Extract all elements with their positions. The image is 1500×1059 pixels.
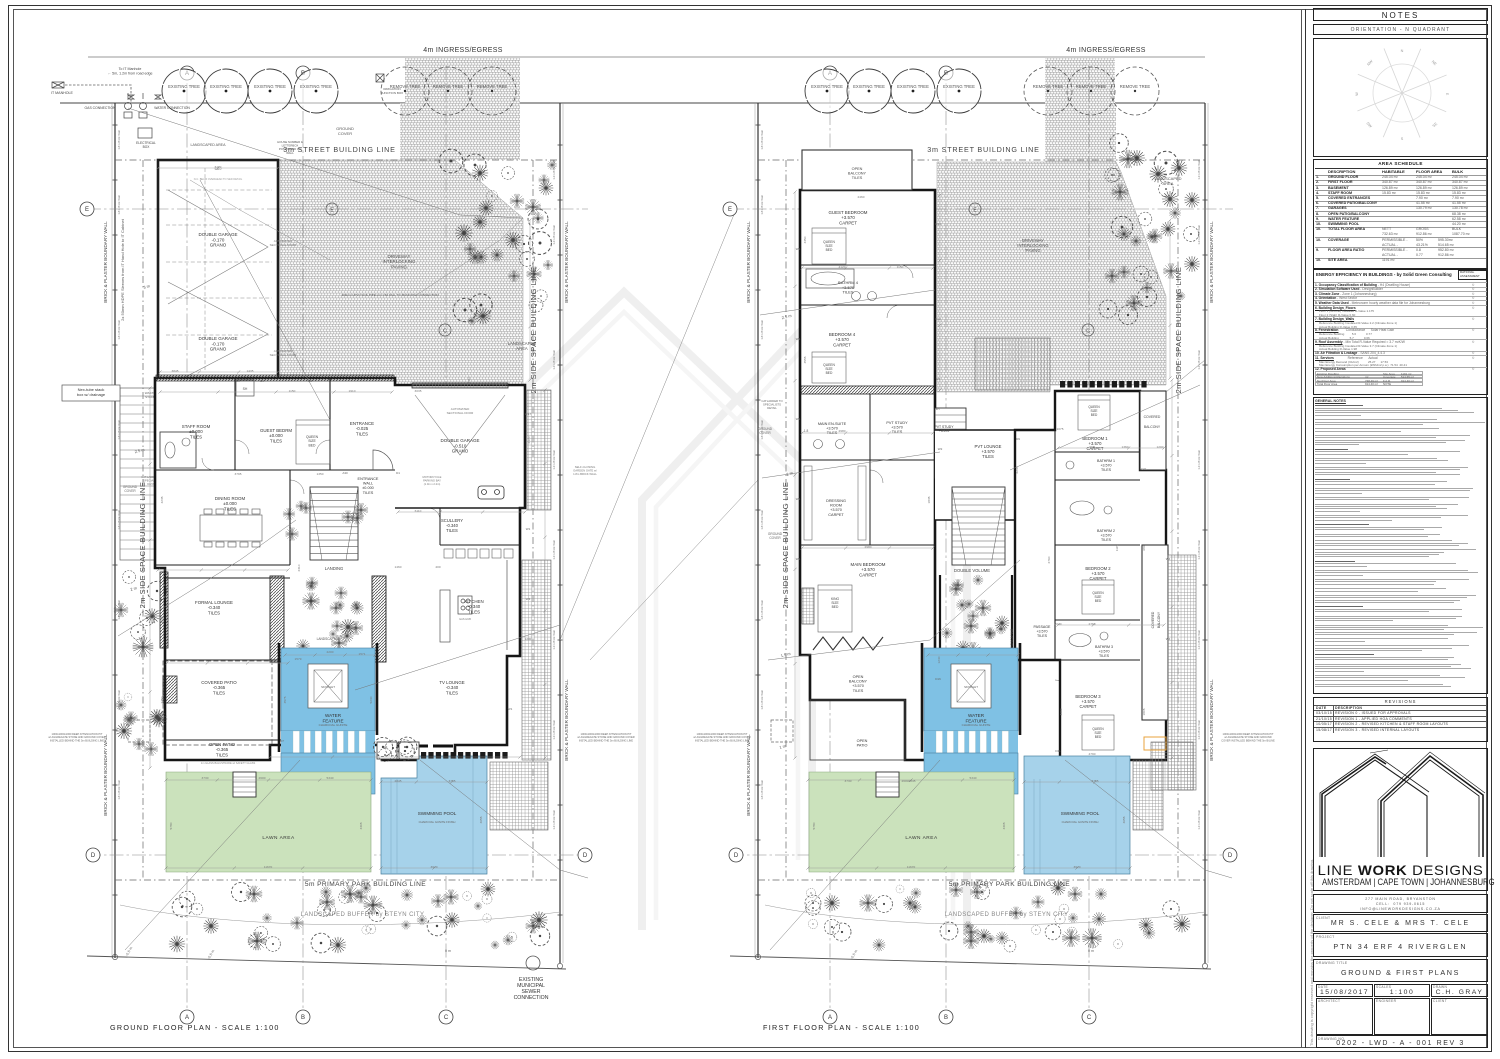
svg-text:D3: D3 xyxy=(308,379,312,383)
svg-text:DOUBLE GARAGE-0.170GRANO: DOUBLE GARAGE-0.170GRANO xyxy=(198,232,237,248)
svg-text:COVERED: COVERED xyxy=(1144,415,1161,419)
svg-text:IRRIGATIONJUNCTION BOX: IRRIGATIONJUNCTION BOX xyxy=(381,87,403,95)
svg-text:CHARCOAL GUNITE FINISH: CHARCOAL GUNITE FINISH xyxy=(419,820,456,824)
svg-text:C: C xyxy=(444,1015,449,1021)
svg-text:5780: 5780 xyxy=(169,822,173,829)
svg-text:-0.5 m: -0.5 m xyxy=(207,949,216,960)
svg-text:SKYLIGHT: SKYLIGHT xyxy=(964,685,978,689)
svg-text:3845: 3845 xyxy=(172,369,179,373)
svg-text:2600: 2600 xyxy=(259,776,266,780)
svg-text:LANDSCAPED AREA: LANDSCAPED AREA xyxy=(191,143,227,147)
svg-text:4350: 4350 xyxy=(803,236,807,243)
svg-text:4m INGRESS/EGRESS: 4m INGRESS/EGRESS xyxy=(1066,47,1145,54)
svg-text:A30: A30 xyxy=(342,471,348,475)
svg-text:To IT Manhole← 5m, 1.2m from: To IT Manhole← 5m, 1.2m from road edge xyxy=(108,67,153,75)
svg-text:4308: 4308 xyxy=(1002,822,1006,829)
svg-text:W1: W1 xyxy=(796,247,801,251)
svg-text:GROUNDCOVER: GROUNDCOVER xyxy=(336,126,354,136)
svg-text:1.8m Brick Wall: 1.8m Brick Wall xyxy=(117,130,121,150)
svg-text:1000x1000x1000 DEEP ATTENUATIO: 1000x1000x1000 DEEP ATTENUATION PITw/ AG… xyxy=(693,732,750,742)
svg-text:2 m: 2 m xyxy=(130,585,138,592)
svg-text:D16: D16 xyxy=(935,677,941,681)
svg-text:1240: 1240 xyxy=(937,656,941,663)
svg-text:2760: 2760 xyxy=(1047,556,1051,563)
svg-text:OPENPATIO: OPENPATIO xyxy=(857,739,868,748)
svg-text:400: 400 xyxy=(435,565,440,569)
svg-text:W4: W4 xyxy=(1166,637,1171,641)
svg-text:4235: 4235 xyxy=(160,496,164,503)
svg-text:1.2m Brick Wall: 1.2m Brick Wall xyxy=(552,720,556,740)
svg-text:2x 50mm HDPE Sleeves from IT H: 2x 50mm HDPE Sleeves from IT Hand Hole t… xyxy=(120,218,125,321)
svg-text:WATER CONNECTION: WATER CONNECTION xyxy=(154,106,190,110)
svg-text:SH: SH xyxy=(236,379,240,383)
svg-text:11670: 11670 xyxy=(264,865,273,869)
svg-text:2200: 2200 xyxy=(327,650,334,654)
svg-text:4555: 4555 xyxy=(803,356,807,363)
svg-text:W17: W17 xyxy=(525,412,532,416)
svg-text:B: B xyxy=(301,1015,305,1021)
svg-text:4575: 4575 xyxy=(283,696,287,703)
svg-text:-0.5 m: -0.5 m xyxy=(850,949,859,960)
svg-text:GROUNDCOVER: GROUNDCOVER xyxy=(123,485,138,493)
svg-text:BRICK & PLASTER BOUNDARY WALL: BRICK & PLASTER BOUNDARY WALL xyxy=(103,734,108,816)
svg-text:D11: D11 xyxy=(1055,749,1061,753)
svg-text:ELECTRICALBOX: ELECTRICALBOX xyxy=(136,141,156,149)
svg-text:1.8m Brick Wall: 1.8m Brick Wall xyxy=(760,320,764,340)
svg-text:1.2m Brick Wall: 1.2m Brick Wall xyxy=(1197,630,1201,650)
svg-text:1000x1000x1000 DEEP ATTENUATIO: 1000x1000x1000 DEEP ATTENUATION PITw/ AG… xyxy=(1221,732,1275,742)
svg-text:IT MANHOLE: IT MANHOLE xyxy=(51,91,74,95)
svg-text:3920: 3920 xyxy=(1074,865,1081,869)
svg-text:1435: 1435 xyxy=(247,369,254,373)
svg-text:REMOVE TREE: REMOVE TREE xyxy=(433,84,464,89)
svg-text:5340: 5340 xyxy=(970,776,977,780)
svg-text:1.8m Brick Wall: 1.8m Brick Wall xyxy=(117,195,121,215)
svg-text:EXISTING TREE: EXISTING TREE xyxy=(300,84,332,89)
svg-text:EXISTINGMUNICIPALSEWERCONNECTI: EXISTINGMUNICIPALSEWERCONNECTION xyxy=(514,977,549,1001)
svg-text:REMOVE TREE: REMOVE TREE xyxy=(1033,84,1064,89)
svg-text:FIRST FLOOR PLAN - SCALE 1:100: FIRST FLOOR PLAN - SCALE 1:100 xyxy=(763,1023,920,1032)
svg-text:1.2m Brick Wall: 1.2m Brick Wall xyxy=(1197,810,1201,830)
svg-text:2760: 2760 xyxy=(1089,622,1096,626)
svg-text:D: D xyxy=(1228,853,1233,859)
svg-text:KINGSIZEBED: KINGSIZEBED xyxy=(831,597,839,609)
svg-text:1.2m Brick Wall: 1.2m Brick Wall xyxy=(1197,540,1201,560)
svg-text:GROUNDCOVER: GROUNDCOVER xyxy=(768,532,783,540)
svg-text:3920: 3920 xyxy=(431,865,438,869)
svg-text:EXISTING TREE: EXISTING TREE xyxy=(811,84,843,89)
svg-text:D11: D11 xyxy=(1141,467,1147,471)
svg-text:C: C xyxy=(1086,329,1090,335)
svg-text:REMOVE TREE: REMOVE TREE xyxy=(1120,84,1151,89)
svg-text:4655: 4655 xyxy=(1122,816,1126,823)
svg-text:BRICK & PLASTER BOUNDARY WALL: BRICK & PLASTER BOUNDARY WALL xyxy=(1209,679,1214,761)
svg-text:1360: 1360 xyxy=(1122,445,1129,449)
svg-text:1.8m Brick Wall: 1.8m Brick Wall xyxy=(117,780,121,800)
svg-text:6110: 6110 xyxy=(215,165,222,169)
svg-text:2980: 2980 xyxy=(839,429,846,433)
svg-text:1.2m Brick Wall: 1.2m Brick Wall xyxy=(1197,160,1201,180)
svg-text:1075: 1075 xyxy=(1057,427,1064,431)
svg-text:EXISTING TREE: EXISTING TREE xyxy=(943,84,975,89)
svg-text:C: C xyxy=(443,329,447,335)
svg-text:N.C. BEAM OVERHEAD TO SED DETA: N.C. BEAM OVERHEAD TO SED DETAIL xyxy=(194,177,243,181)
svg-text:A: A xyxy=(185,1015,189,1021)
svg-text:GAS HUB: GAS HUB xyxy=(459,617,471,621)
svg-text:SELF-CLOSINGGARDEN GATE w/1.8m: SELF-CLOSINGGARDEN GATE w/1.8m BRICK WAL… xyxy=(573,465,597,476)
svg-text:D9: D9 xyxy=(1016,437,1020,441)
svg-text:1.2m Brick Wall: 1.2m Brick Wall xyxy=(552,450,556,470)
svg-text:BALCONY: BALCONY xyxy=(1157,611,1161,628)
svg-text:LAWN AREA: LAWN AREA xyxy=(905,835,938,841)
svg-text:D1: D1 xyxy=(396,471,400,475)
svg-text:4655: 4655 xyxy=(479,816,483,823)
svg-text:3755: 3755 xyxy=(1092,779,1099,783)
svg-text:GAS CONNECTION: GAS CONNECTION xyxy=(85,106,116,110)
svg-text:965: 965 xyxy=(1089,445,1094,449)
svg-text:1.2m Brick Wall: 1.2m Brick Wall xyxy=(552,225,556,245)
svg-text:5m PRIMARY PARK BUILDING LINE: 5m PRIMARY PARK BUILDING LINE xyxy=(949,881,1070,888)
svg-text:5230: 5230 xyxy=(369,696,373,703)
svg-text:W7: W7 xyxy=(936,377,941,381)
svg-text:E: E xyxy=(85,207,89,213)
svg-text:D14: D14 xyxy=(935,222,941,226)
svg-text:-0.5 m: -0.5 m xyxy=(125,946,134,957)
svg-text:1.2m Brick Wall: 1.2m Brick Wall xyxy=(1197,350,1201,370)
svg-text:2845: 2845 xyxy=(909,779,916,783)
svg-text:EXISTING TREE: EXISTING TREE xyxy=(210,84,242,89)
svg-text:REMOVE TREE: REMOVE TREE xyxy=(477,84,508,89)
svg-text:DOUBLE GARAGE-0.170GRANO: DOUBLE GARAGE-0.170GRANO xyxy=(198,336,237,352)
svg-text:SWIMMING POOL: SWIMMING POOL xyxy=(1061,811,1100,816)
svg-text:D12: D12 xyxy=(935,317,941,321)
svg-text:2170: 2170 xyxy=(527,436,531,443)
svg-text:D: D xyxy=(91,853,96,859)
svg-text:GROUND FLOOR PLAN - SCALE 1:10: GROUND FLOOR PLAN - SCALE 1:100 xyxy=(110,1023,280,1032)
svg-text:1.2m Brick Wall: 1.2m Brick Wall xyxy=(552,630,556,650)
svg-text:D6: D6 xyxy=(260,379,264,383)
svg-text:E: E xyxy=(728,207,732,213)
svg-text:1350: 1350 xyxy=(317,472,324,476)
svg-text:1000x1000x1000 DEEP ATTENUATIO: 1000x1000x1000 DEEP ATTENUATION PITw/ AG… xyxy=(48,732,105,742)
svg-text:3755: 3755 xyxy=(449,779,456,783)
svg-text:2m SIDE SPACE BUILDING LINE: 2m SIDE SPACE BUILDING LINE xyxy=(138,482,147,609)
svg-text:2.5 m: 2.5 m xyxy=(134,447,146,455)
svg-text:1200: 1200 xyxy=(525,637,532,641)
svg-text:LANDSCAPED BUFFER by STEYN CIT: LANDSCAPED BUFFER by STEYN CITY xyxy=(945,912,1069,918)
svg-text:CHARCOAL GUNITE FINISH: CHARCOAL GUNITE FINISH xyxy=(1062,820,1099,824)
svg-text:1.8m Brick Wall: 1.8m Brick Wall xyxy=(760,195,764,215)
svg-text:REMOVE TREE: REMOVE TREE xyxy=(1076,84,1107,89)
svg-text:2310: 2310 xyxy=(297,564,301,571)
svg-text:W3: W3 xyxy=(383,745,388,749)
svg-text:BRICK & PLASTER BOUNDARY WALL: BRICK & PLASTER BOUNDARY WALL xyxy=(564,679,569,761)
svg-text:2m SIDE SPACE BUILDING LINE: 2m SIDE SPACE BUILDING LINE xyxy=(529,267,538,394)
svg-text:2600: 2600 xyxy=(902,779,909,783)
svg-text:2980: 2980 xyxy=(865,545,872,549)
svg-text:1.2m Brick Wall: 1.2m Brick Wall xyxy=(552,810,556,830)
svg-text:1579: 1579 xyxy=(295,657,302,661)
svg-text:6233: 6233 xyxy=(1015,466,1019,473)
svg-text:1805: 1805 xyxy=(1142,708,1146,715)
svg-text:3960: 3960 xyxy=(1059,708,1063,715)
svg-text:1.2m Brick Wall: 1.2m Brick Wall xyxy=(1197,720,1201,740)
svg-text:1m GLASS BALUSTRADE w/ SAFETY: 1m GLASS BALUSTRADE w/ SAFETY GLASS xyxy=(201,761,256,765)
svg-text:1.2m Brick Wall: 1.2m Brick Wall xyxy=(1197,225,1201,245)
svg-text:6110: 6110 xyxy=(415,509,422,513)
svg-text:4120: 4120 xyxy=(839,265,846,269)
svg-text:1835: 1835 xyxy=(927,496,931,503)
svg-text:1150: 1150 xyxy=(897,265,904,269)
svg-text:5340: 5340 xyxy=(327,776,334,780)
svg-text:3730: 3730 xyxy=(202,776,209,780)
svg-text:WATERFEATURE: WATERFEATURE xyxy=(322,713,343,723)
svg-text:1.8m Brick Wall: 1.8m Brick Wall xyxy=(760,690,764,710)
svg-text:WATERFEATURE: WATERFEATURE xyxy=(965,713,986,723)
svg-text:COVERED: COVERED xyxy=(1151,611,1155,628)
svg-text:1.8m Brick Wall: 1.8m Brick Wall xyxy=(760,780,764,800)
svg-text:BRICK & PLASTER BOUNDARY WALL: BRICK & PLASTER BOUNDARY WALL xyxy=(746,221,751,303)
svg-text:2110: 2110 xyxy=(467,376,471,383)
svg-text:C: C xyxy=(1087,1015,1092,1021)
svg-text:1000x1000x1000 DEEP ATTENUATIO: 1000x1000x1000 DEEP ATTENUATION PITw/ AG… xyxy=(577,732,634,742)
svg-text:100mm UPVC SOIL PIPE min 1:60: 100mm UPVC SOIL PIPE min 1:60 FALL TO MU… xyxy=(341,293,438,297)
svg-text:GROUNDCOVER: GROUNDCOVER xyxy=(758,427,773,435)
svg-text:W4: W4 xyxy=(1166,557,1171,561)
svg-text:2040: 2040 xyxy=(1055,622,1062,626)
svg-text:W1: W1 xyxy=(526,527,531,531)
svg-text:2460: 2460 xyxy=(858,195,865,199)
svg-text:1460: 1460 xyxy=(395,565,402,569)
svg-text:BRICK & PLASTER BOUNDARY WALL: BRICK & PLASTER BOUNDARY WALL xyxy=(746,734,751,816)
svg-text:A: A xyxy=(828,1015,832,1021)
svg-text:W2: W2 xyxy=(938,447,943,451)
svg-text:LANDSCAPED BUFFER by STEYN CIT: LANDSCAPED BUFFER by STEYN CITY xyxy=(301,912,425,918)
svg-text:2m SIDE SPACE BUILDING LINE: 2m SIDE SPACE BUILDING LINE xyxy=(1174,267,1183,394)
svg-text:0 m: 0 m xyxy=(1088,949,1094,953)
svg-text:2.5 m: 2.5 m xyxy=(781,313,793,321)
svg-text:1.8m Brick Wall: 1.8m Brick Wall xyxy=(760,130,764,150)
svg-text:1.2m Brick Wall: 1.2m Brick Wall xyxy=(1197,450,1201,470)
svg-text:W3: W3 xyxy=(526,597,531,601)
svg-text:1.8m Brick Wall: 1.8m Brick Wall xyxy=(117,320,121,340)
svg-text:1.8: 1.8 xyxy=(804,429,809,433)
svg-text:DOUBLE VOLUME: DOUBLE VOLUME xyxy=(954,568,990,573)
svg-text:1.2m Brick Wall: 1.2m Brick Wall xyxy=(552,540,556,560)
svg-text:CHARCOAL GUNITE: CHARCOAL GUNITE xyxy=(962,723,991,727)
svg-text:D7: D7 xyxy=(280,739,284,743)
svg-text:CATLADDER TOSPECIALISTSDETAIL: CATLADDER TOSPECIALISTSDETAIL xyxy=(761,399,783,410)
svg-text:SWIMMING POOL: SWIMMING POOL xyxy=(418,811,457,816)
svg-text:4308: 4308 xyxy=(359,822,363,829)
svg-text:2m SIDE SPACE BUILDING LINE: 2m SIDE SPACE BUILDING LINE xyxy=(781,482,790,609)
svg-text:LANDSCAPING: LANDSCAPING xyxy=(317,637,340,641)
svg-text:SH: SH xyxy=(243,387,248,391)
svg-text:1.2m Brick Wall: 1.2m Brick Wall xyxy=(552,350,556,370)
svg-text:EXISTING TREE: EXISTING TREE xyxy=(168,84,200,89)
svg-text:1.8m Brick Wall: 1.8m Brick Wall xyxy=(760,600,764,620)
svg-text:3795: 3795 xyxy=(235,472,242,476)
svg-text:W7: W7 xyxy=(936,407,941,411)
svg-text:BRICK & PLASTER BOUNDARY WALL: BRICK & PLASTER BOUNDARY WALL xyxy=(564,221,569,303)
svg-text:EXISTING TREE: EXISTING TREE xyxy=(897,84,929,89)
svg-text:BRICK & PLASTER BOUNDARY WALL: BRICK & PLASTER BOUNDARY WALL xyxy=(103,221,108,303)
svg-text:EXISTING TREE: EXISTING TREE xyxy=(853,84,885,89)
svg-text:4790: 4790 xyxy=(1089,752,1096,756)
svg-text:1200: 1200 xyxy=(1157,445,1164,449)
svg-text:D: D xyxy=(734,853,739,859)
svg-text:LANDSCAPEDAREA: LANDSCAPEDAREA xyxy=(1154,176,1181,186)
svg-text:1910: 1910 xyxy=(349,389,356,393)
svg-text:1571: 1571 xyxy=(359,652,366,656)
svg-text:4m INGRESS/EGRESS: 4m INGRESS/EGRESS xyxy=(423,47,502,54)
svg-text:LAWN AREA: LAWN AREA xyxy=(262,835,295,841)
svg-text:3730: 3730 xyxy=(845,779,852,783)
svg-text:BALCONY: BALCONY xyxy=(1144,425,1161,429)
svg-text:680: 680 xyxy=(1142,545,1146,550)
svg-text:2845: 2845 xyxy=(395,779,402,783)
svg-text:11670: 11670 xyxy=(907,865,916,869)
svg-text:W1: W1 xyxy=(796,557,801,561)
svg-text:0 m: 0 m xyxy=(445,949,451,953)
svg-text:W1: W1 xyxy=(796,417,801,421)
svg-text:2750: 2750 xyxy=(160,696,164,703)
svg-text:1150: 1150 xyxy=(289,389,296,393)
svg-text:SKYLIGHT: SKYLIGHT xyxy=(321,685,335,689)
svg-text:3035: 3035 xyxy=(415,389,422,393)
svg-text:D: D xyxy=(583,853,588,859)
svg-text:W1: W1 xyxy=(796,497,801,501)
svg-text:W1: W1 xyxy=(508,707,513,711)
svg-text:LANDING: LANDING xyxy=(325,566,344,571)
svg-text:3 m: 3 m xyxy=(143,283,151,290)
svg-text:CHARCOAL GUNITE: CHARCOAL GUNITE xyxy=(319,723,348,727)
svg-text:4245: 4245 xyxy=(160,616,164,623)
svg-text:3m STREET BUILDING LINE: 3m STREET BUILDING LINE xyxy=(927,145,1040,154)
svg-text:W1: W1 xyxy=(796,337,801,341)
svg-text:Nex-tube stackbox w/ drainage: Nex-tube stackbox w/ drainage xyxy=(77,387,106,397)
svg-text:5780: 5780 xyxy=(812,822,816,829)
svg-text:BRICK & PLASTER BOUNDARY WALL: BRICK & PLASTER BOUNDARY WALL xyxy=(1209,221,1214,303)
svg-text:1115: 1115 xyxy=(1115,545,1119,552)
svg-text:1.8m Brick Wall: 1.8m Brick Wall xyxy=(760,510,764,530)
svg-text:EXISTING TREE: EXISTING TREE xyxy=(254,84,286,89)
svg-text:B: B xyxy=(944,1015,948,1021)
svg-text:MOTORCYCLEPARKING BAY(1.0m x 2: MOTORCYCLEPARKING BAY(1.0m x 2.2m) xyxy=(423,475,442,486)
